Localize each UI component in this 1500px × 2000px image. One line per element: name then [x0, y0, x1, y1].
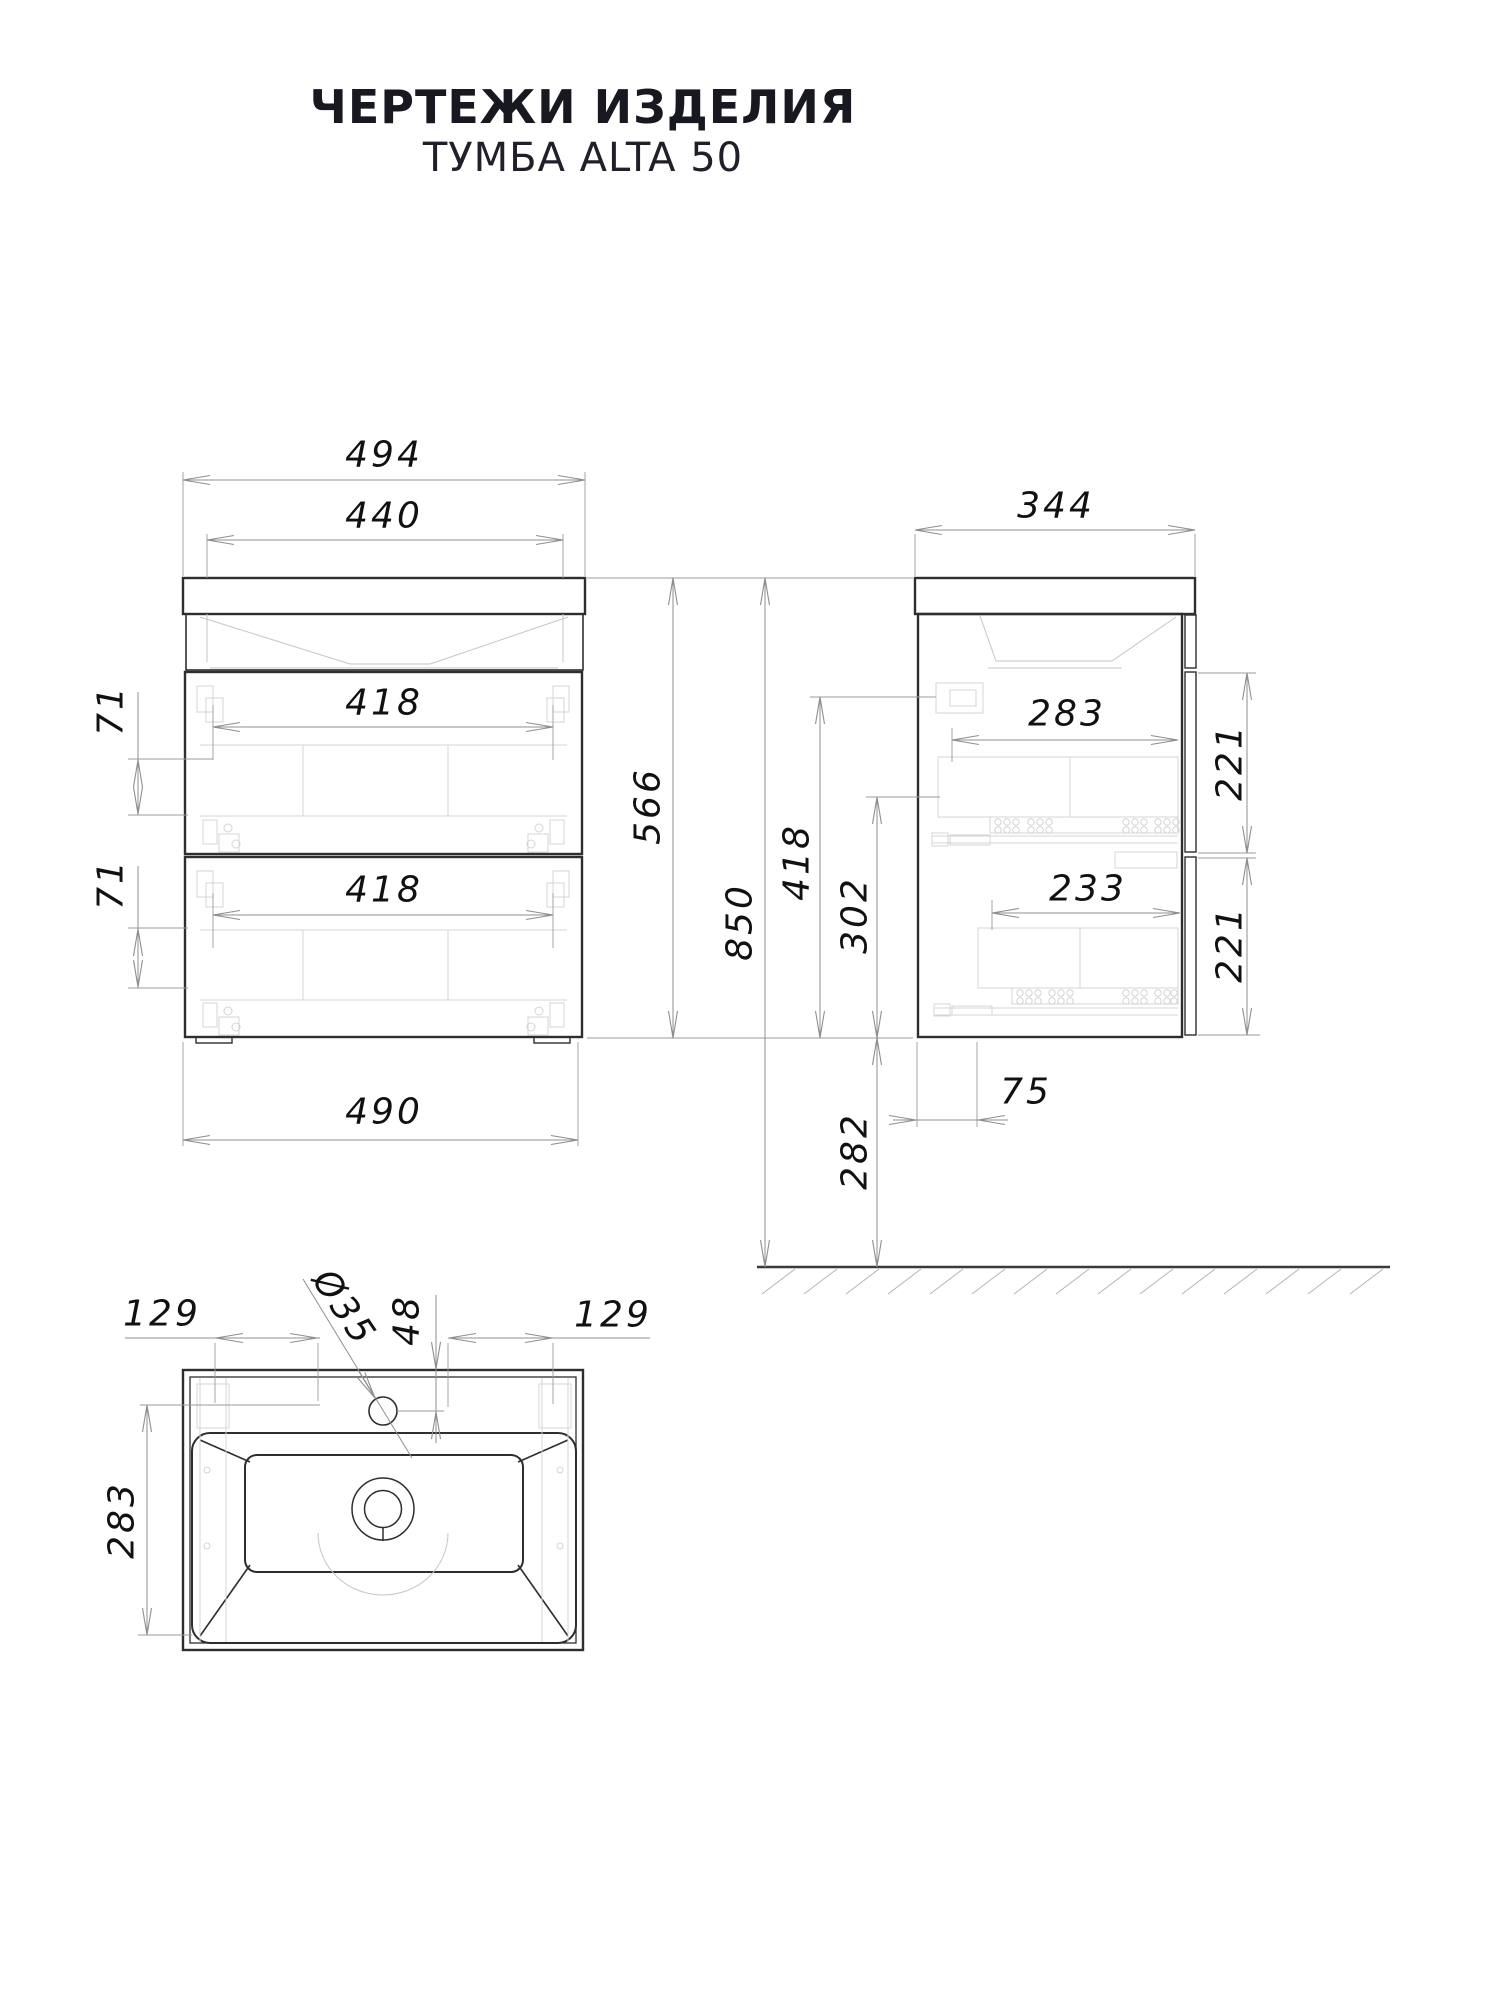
top-bowl-chamfers	[200, 1440, 568, 1636]
side-height-418-dim: 418	[777, 823, 818, 901]
front-sink-section	[186, 614, 583, 670]
front-gap-top-dim: 71	[91, 684, 132, 736]
front-dimensions: 494 440 418 418 71	[91, 435, 914, 1147]
side-drawer-fronts	[1185, 615, 1196, 1035]
top-hole-diameter-dim: Ø35	[303, 1260, 385, 1354]
side-front1-height-dim: 221	[1210, 723, 1251, 801]
floor-hatching	[762, 1269, 1383, 1294]
top-hole-offset-dim: 48	[387, 1294, 428, 1346]
top-right-offset-dim: 129	[574, 1295, 652, 1336]
side-depth-dim: 344	[1017, 486, 1095, 527]
top-view	[183, 1370, 583, 1650]
overflow-arc	[318, 1533, 448, 1595]
top-bowl-outer	[192, 1433, 576, 1643]
front-inner-width-dim: 440	[345, 496, 423, 537]
drawing-page: ЧЕРТЕЖИ ИЗДЕЛИЯ ТУМБА ALTA 50	[0, 0, 1500, 2000]
floor-line	[757, 1267, 1390, 1294]
front-view	[183, 578, 585, 1043]
front-bottom-width-dim: 490	[345, 1092, 423, 1133]
front-gap-bottom-dim: 71	[91, 858, 132, 910]
side-front2-height-dim: 221	[1210, 905, 1251, 983]
front-overall-width-dim: 494	[345, 435, 423, 476]
side-drawer2-hardware	[934, 928, 1178, 1016]
front-sink-ghost	[200, 614, 568, 668]
technical-drawing-canvas: 494 440 418 418 71	[0, 0, 1500, 2000]
front-drawer2-width-dim: 418	[345, 870, 423, 911]
side-drawer2-depth-dim: 233	[1049, 869, 1127, 910]
top-left-offset-dim: 129	[123, 1294, 201, 1335]
side-sink-ghost	[980, 616, 1176, 668]
side-drawer1-depth-dim: 283	[1028, 694, 1106, 735]
side-dimensions: 344 283 233 221 221 418	[720, 486, 1261, 1268]
front-basin-top	[183, 578, 585, 614]
drain-hole	[352, 1478, 414, 1541]
side-wall-bracket	[936, 683, 983, 713]
top-basin-depth-dim: 283	[102, 1481, 143, 1559]
side-back-offset-dim: 75	[1000, 1072, 1052, 1113]
top-bowl-inner	[245, 1455, 523, 1572]
front-body-height-dim: 566	[628, 767, 669, 845]
top-ghost-sides	[197, 1378, 571, 1642]
side-total-height-dim: 850	[720, 883, 761, 961]
side-drawer1-hardware	[932, 757, 1179, 868]
side-basin-top	[915, 578, 1195, 614]
side-floor-clearance-dim: 282	[835, 1112, 876, 1190]
side-view	[915, 578, 1196, 1037]
side-height-302-dim: 302	[835, 876, 876, 954]
top-inner-rim	[190, 1377, 576, 1643]
front-drawer1-width-dim: 418	[345, 683, 423, 724]
